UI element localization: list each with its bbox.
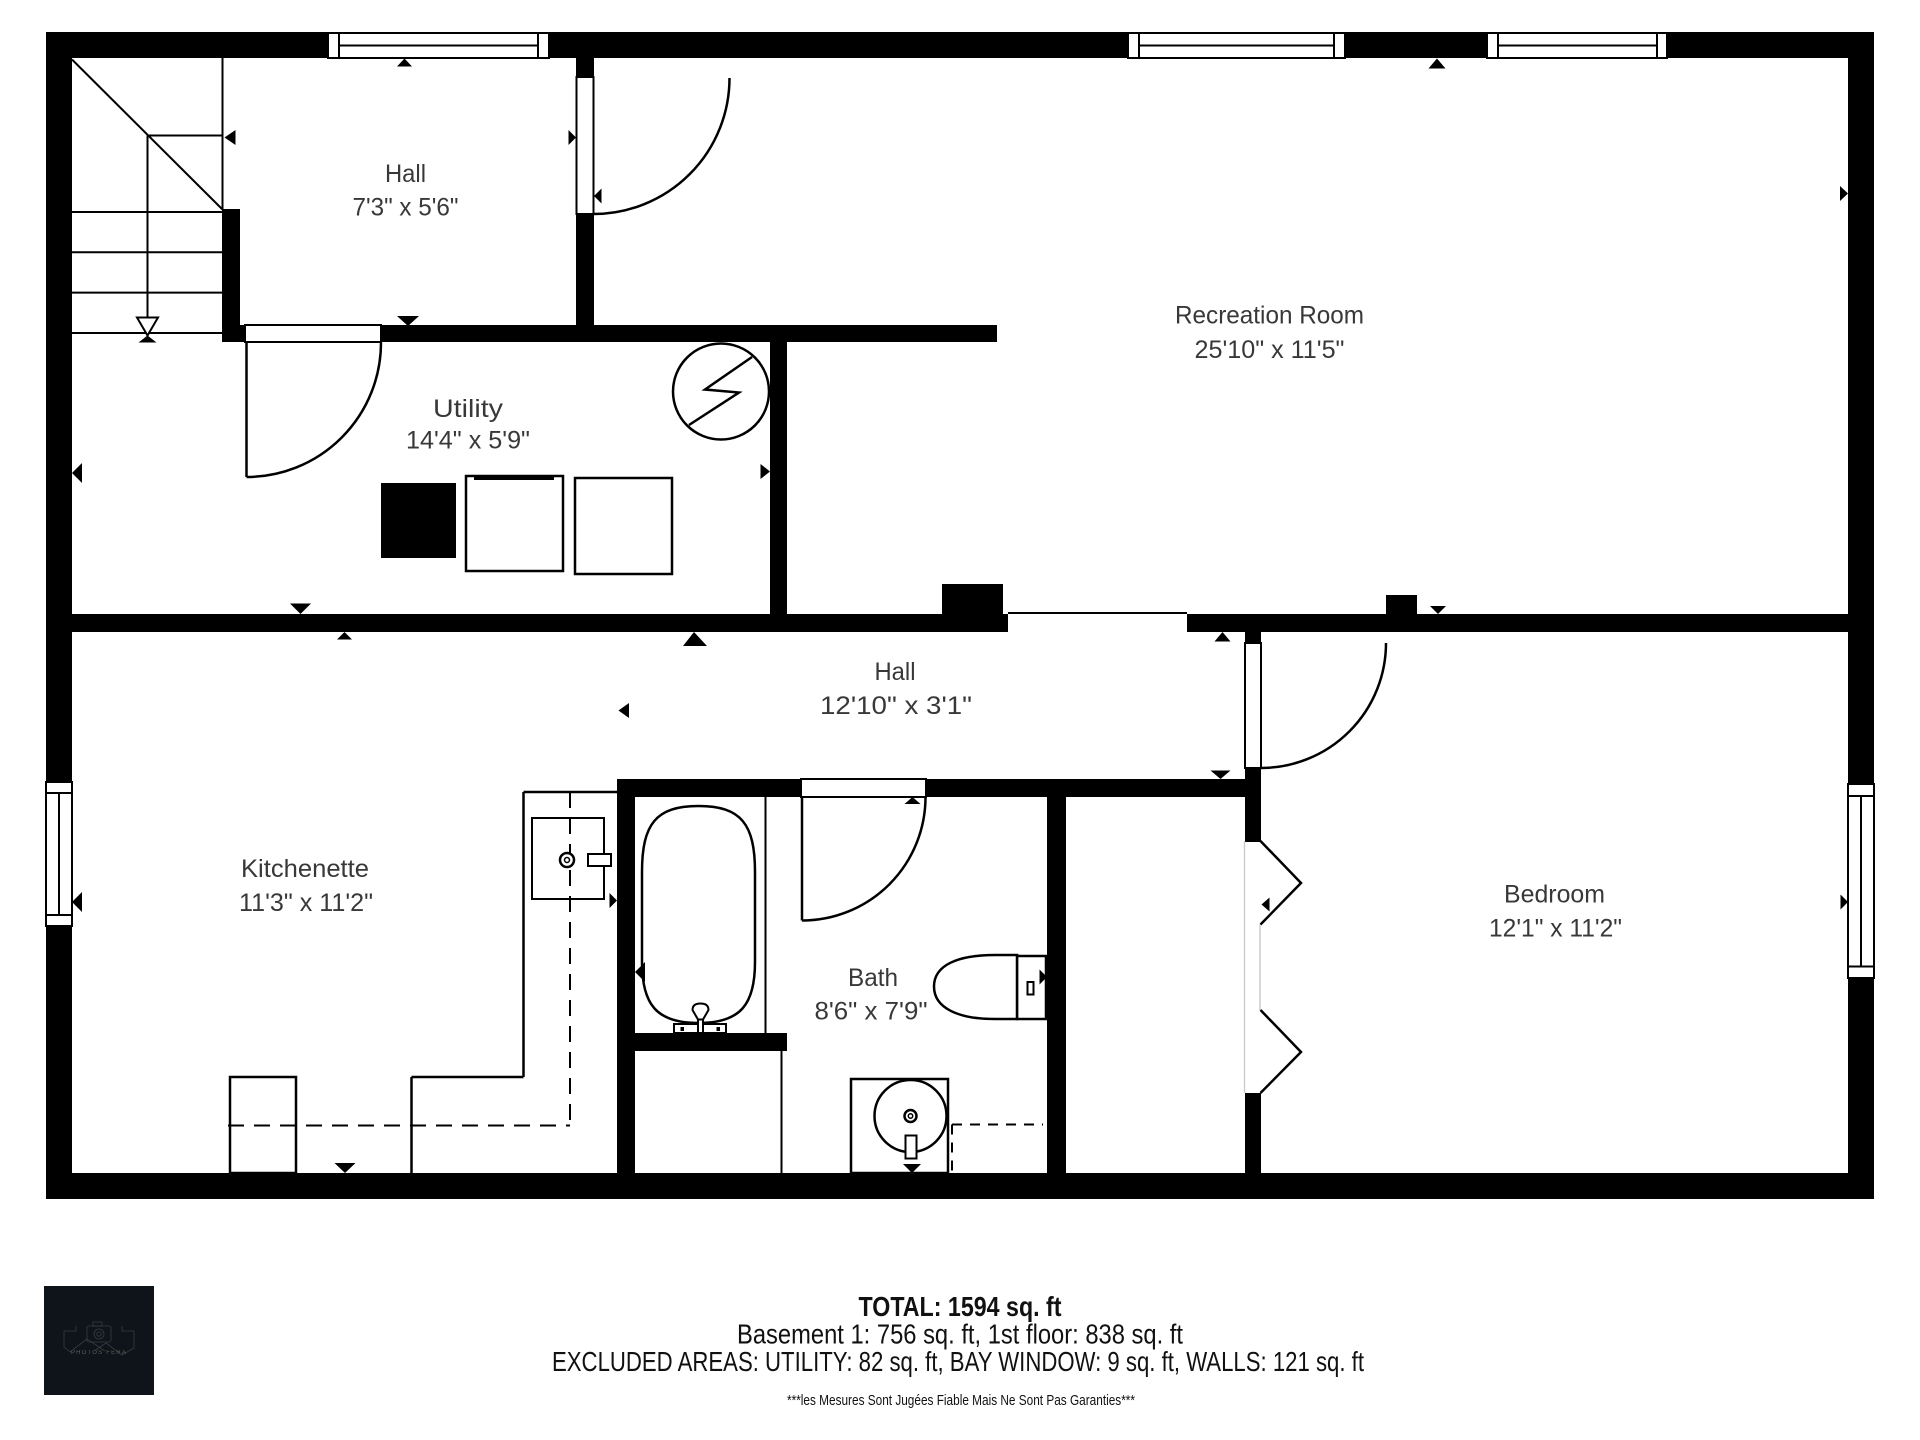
svg-text:12'1" x 11'2": 12'1" x 11'2" — [1489, 915, 1622, 943]
svg-text:Kitchenette: Kitchenette — [241, 855, 369, 883]
svg-text:12'10" x 3'1": 12'10" x 3'1" — [820, 692, 972, 720]
svg-text:14'4" x 5'9": 14'4" x 5'9" — [406, 427, 530, 455]
svg-text:Bath: Bath — [848, 964, 898, 992]
svg-text:25'10" x 11'5": 25'10" x 11'5" — [1195, 336, 1345, 364]
svg-text:Recreation Room: Recreation Room — [1175, 302, 1364, 330]
svg-text:Hall: Hall — [875, 658, 916, 686]
svg-text:Basement 1: 756 sq. ft, 1st fl: Basement 1: 756 sq. ft, 1st floor: 838 s… — [737, 1319, 1183, 1350]
svg-text:Utility: Utility — [433, 395, 504, 423]
svg-text:TOTAL: 1594 sq. ft: TOTAL: 1594 sq. ft — [859, 1291, 1062, 1322]
svg-text:11'3" x 11'2": 11'3" x 11'2" — [239, 889, 373, 917]
svg-text:Bedroom: Bedroom — [1504, 881, 1605, 909]
svg-text:PHOTOS FERA: PHOTOS FERA — [71, 1350, 127, 1356]
svg-text:Hall: Hall — [385, 160, 426, 188]
svg-text:7'3" x 5'6": 7'3" x 5'6" — [353, 194, 459, 222]
svg-text:***les Mesures Sont Jugées Fia: ***les Mesures Sont Jugées Fiable Mais N… — [787, 1392, 1135, 1409]
svg-text:8'6" x 7'9": 8'6" x 7'9" — [815, 998, 928, 1026]
svg-text:EXCLUDED AREAS: UTILITY: 82 sq: EXCLUDED AREAS: UTILITY: 82 sq. ft, BAY … — [552, 1346, 1364, 1377]
